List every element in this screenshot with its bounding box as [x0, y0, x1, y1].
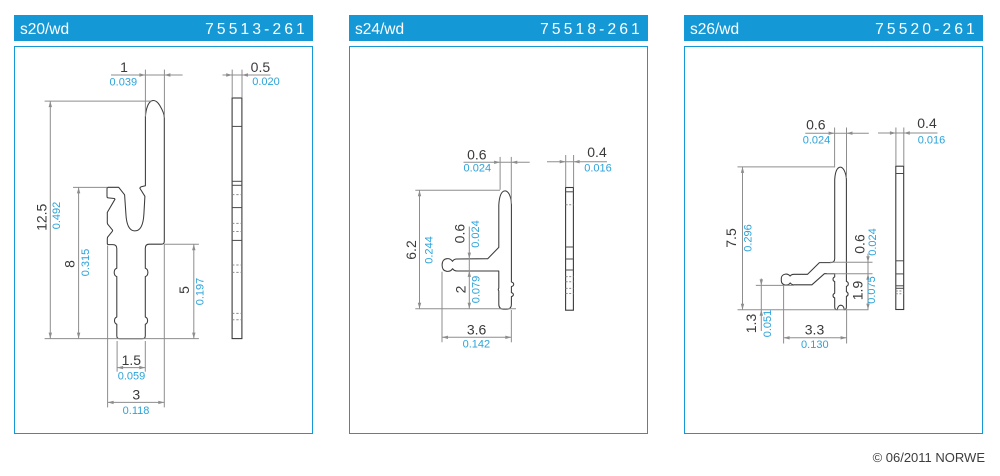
svg-text:5: 5 [176, 286, 192, 294]
svg-text:0.6: 0.6 [806, 117, 826, 133]
svg-text:1.5: 1.5 [122, 352, 142, 368]
svg-text:3.3: 3.3 [805, 322, 825, 338]
svg-text:0.020: 0.020 [252, 76, 280, 88]
svg-text:0.296: 0.296 [743, 224, 755, 252]
svg-text:1.9: 1.9 [850, 281, 866, 301]
svg-text:3.6: 3.6 [467, 322, 487, 338]
svg-text:0.024: 0.024 [867, 228, 879, 256]
svg-text:0.142: 0.142 [463, 339, 491, 351]
svg-text:0.039: 0.039 [110, 77, 138, 89]
svg-text:0.016: 0.016 [918, 134, 946, 146]
svg-text:0.244: 0.244 [424, 236, 436, 264]
svg-text:0.315: 0.315 [80, 249, 92, 277]
svg-text:1.3: 1.3 [743, 314, 759, 334]
svg-text:0.051: 0.051 [762, 310, 774, 338]
svg-text:0.016: 0.016 [584, 162, 612, 174]
svg-text:7.5: 7.5 [723, 228, 739, 248]
svg-text:0.6: 0.6 [467, 146, 487, 162]
svg-text:0.079: 0.079 [471, 276, 483, 304]
svg-text:12.5: 12.5 [33, 203, 49, 230]
svg-text:0.4: 0.4 [587, 144, 607, 160]
svg-text:1: 1 [120, 59, 128, 75]
svg-text:0.6: 0.6 [451, 224, 467, 244]
svg-text:0.024: 0.024 [470, 220, 482, 248]
svg-text:3: 3 [132, 387, 140, 403]
svg-text:8: 8 [62, 260, 78, 268]
svg-text:0.5: 0.5 [251, 59, 271, 75]
svg-text:0.492: 0.492 [51, 202, 63, 230]
svg-text:0.6: 0.6 [852, 234, 868, 254]
svg-text:0.059: 0.059 [118, 370, 146, 382]
svg-text:0.130: 0.130 [801, 339, 829, 351]
svg-text:0.197: 0.197 [195, 278, 207, 306]
svg-text:0.024: 0.024 [464, 163, 492, 175]
svg-text:0.4: 0.4 [917, 115, 937, 131]
svg-text:6.2: 6.2 [403, 240, 419, 260]
svg-text:0.024: 0.024 [803, 135, 831, 147]
svg-text:0.075: 0.075 [866, 276, 878, 304]
svg-text:0.118: 0.118 [123, 405, 150, 417]
svg-text:2: 2 [453, 285, 469, 293]
